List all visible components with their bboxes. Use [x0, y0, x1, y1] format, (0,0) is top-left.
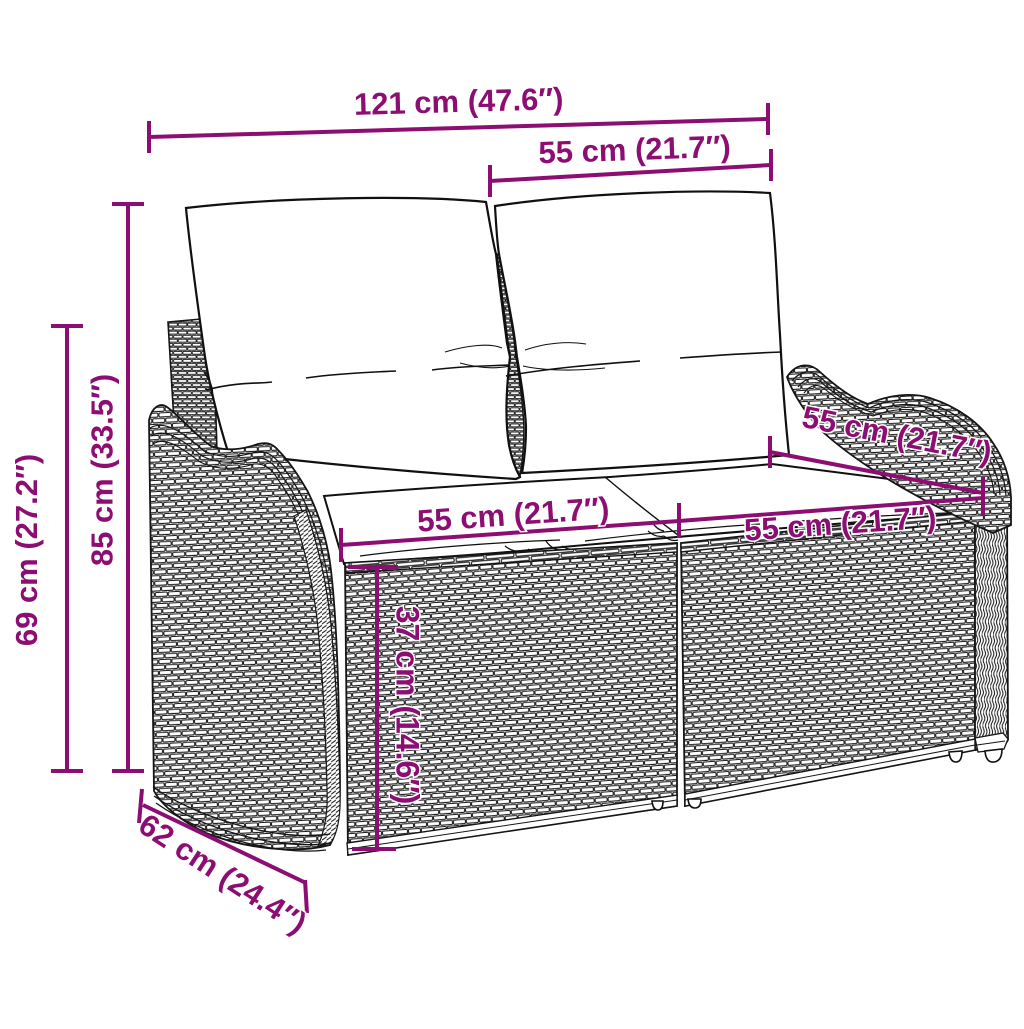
- svg-text:85 cm (33.5″): 85 cm (33.5″): [85, 374, 120, 566]
- svg-text:69 cm (27.2″): 69 cm (27.2″): [9, 454, 44, 646]
- svg-text:121 cm (47.6″): 121 cm (47.6″): [353, 81, 563, 122]
- svg-text:55 cm (21.7″): 55 cm (21.7″): [538, 129, 731, 171]
- svg-text:37 cm (14.6″): 37 cm (14.6″): [390, 606, 426, 805]
